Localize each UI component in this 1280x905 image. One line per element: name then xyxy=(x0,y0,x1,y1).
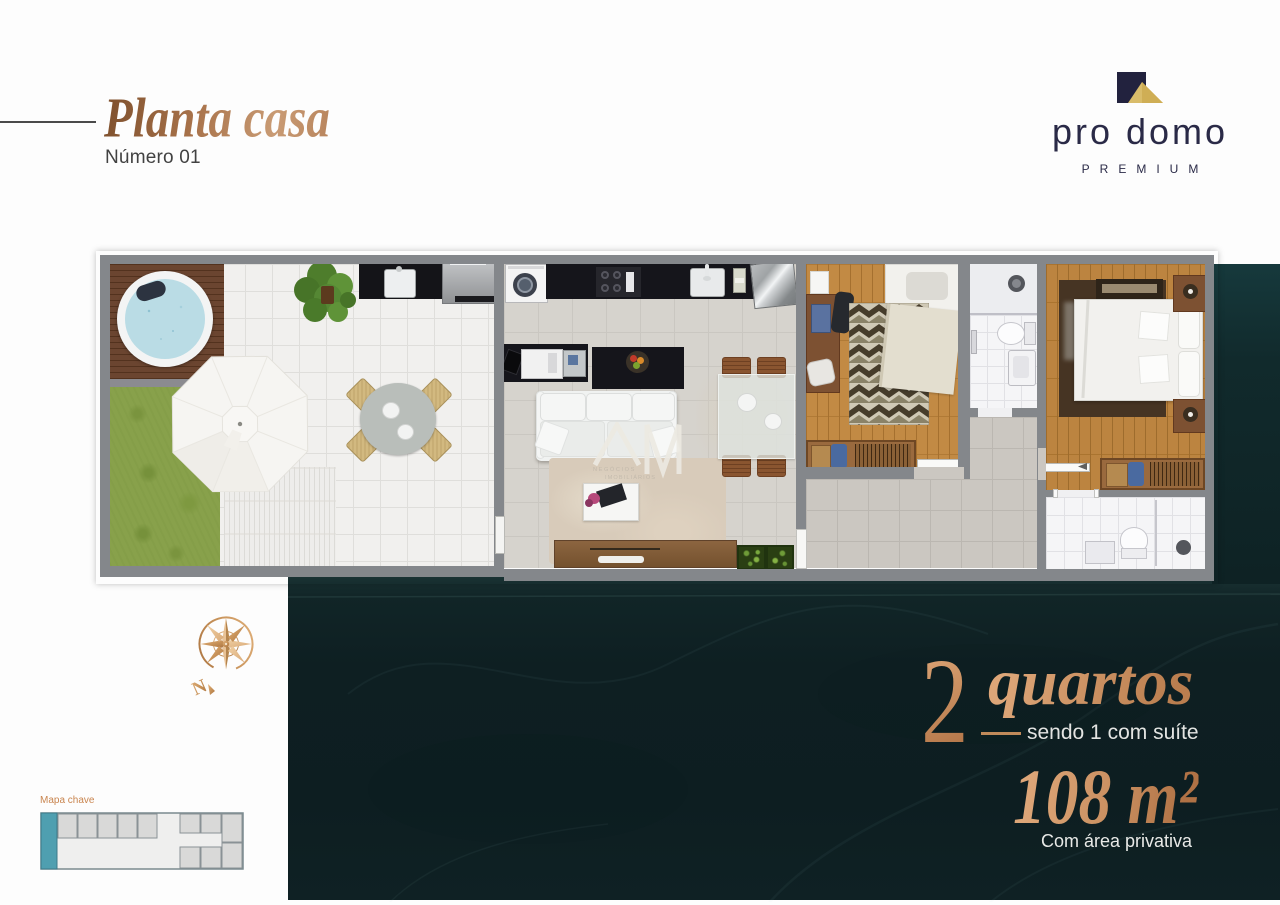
svg-text:IMOBILIÁRIOS: IMOBILIÁRIOS xyxy=(605,474,656,481)
svg-text:NEGÓCIOS: NEGÓCIOS xyxy=(593,466,636,473)
svg-text:N: N xyxy=(189,675,210,700)
